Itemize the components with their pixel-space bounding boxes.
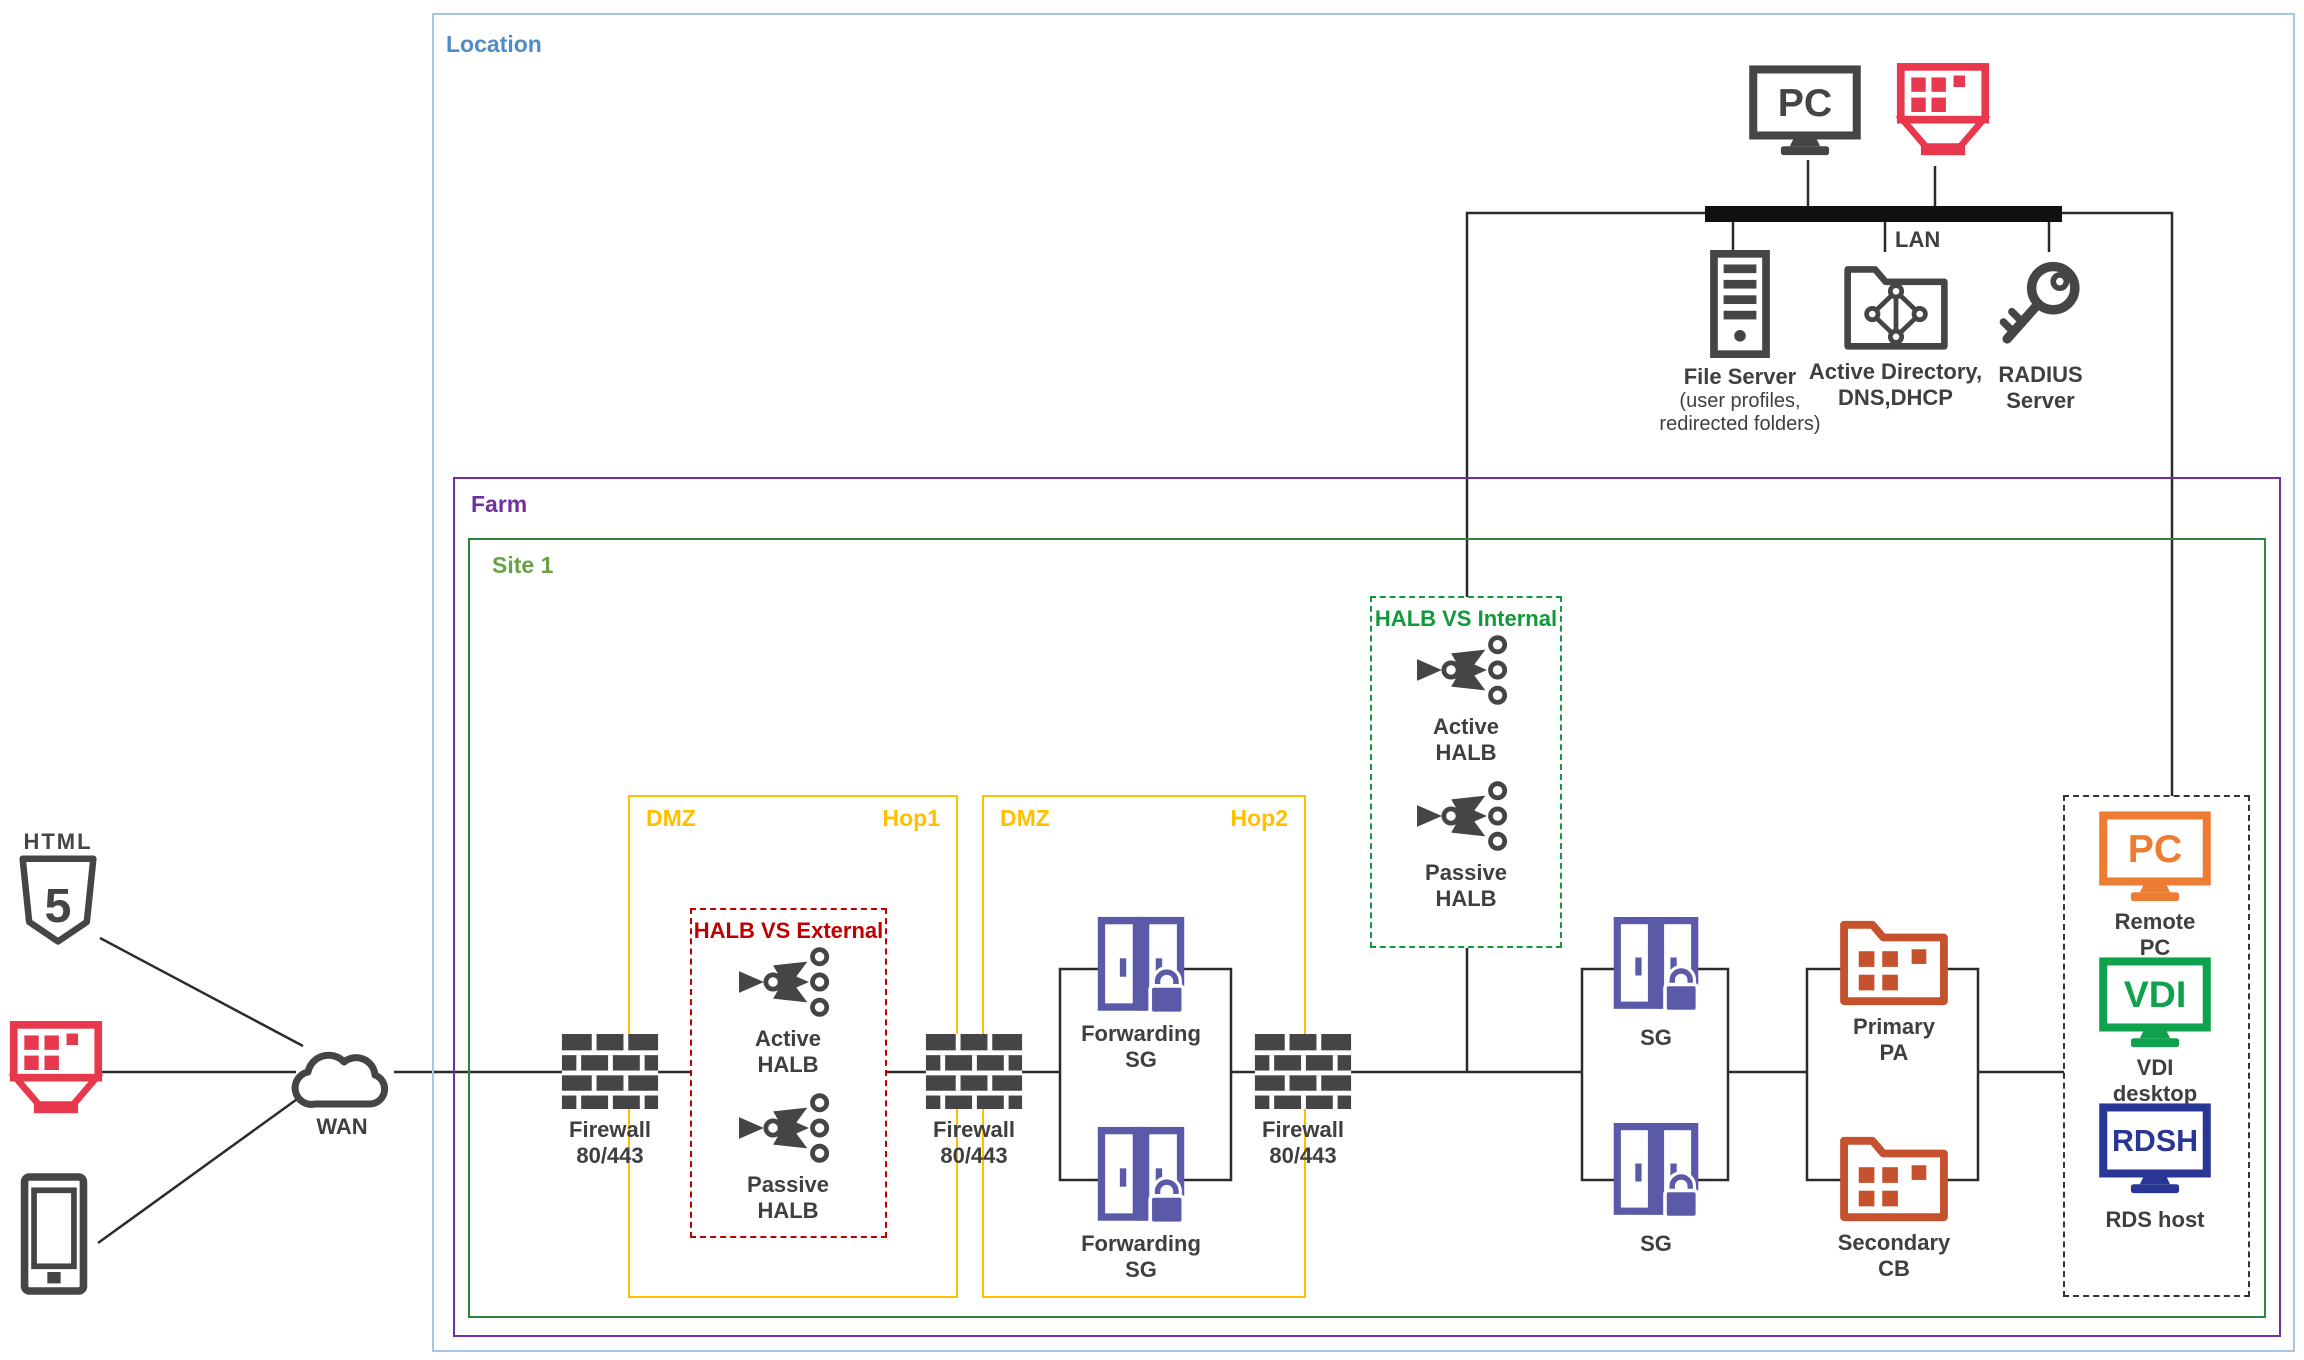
key-icon	[1994, 256, 2088, 356]
firewall-1: Firewall 80/443	[540, 1032, 680, 1169]
active-directory-label: Active Directory, DNS,DHCP	[1809, 359, 1982, 411]
load-balancer-icon	[1417, 778, 1515, 854]
connection-broker-icon	[1837, 1130, 1951, 1224]
html5-badge: HTML	[23, 829, 92, 855]
svg-text:PC: PC	[2128, 827, 2183, 871]
site-zone-label: Site 1	[470, 540, 553, 579]
firewall-label: Firewall 80/443	[569, 1117, 651, 1169]
office-pc: PC	[1740, 64, 1870, 157]
hop2-label: Hop2	[1231, 805, 1289, 832]
file-server-label: File Server	[1684, 364, 1797, 390]
html5-client: HTML 5	[12, 829, 104, 948]
passive-halb-label: Passive HALB	[1425, 860, 1507, 912]
rds-host: RDSH RDS host	[2085, 1102, 2225, 1233]
vdi-desktop-icon: VDI	[2097, 956, 2213, 1049]
rds-host-label: RDS host	[2106, 1207, 2205, 1233]
radius-server: RADIUS Server	[1958, 256, 2123, 414]
firewall-icon	[1253, 1032, 1353, 1111]
parallels-client-icon	[8, 1020, 104, 1120]
parallels-client-icon	[1895, 62, 1991, 162]
dmz2-label: DMZ	[1000, 805, 1050, 832]
cloud-icon	[287, 1030, 397, 1112]
secure-gateway-icon	[1611, 916, 1701, 1017]
svg-text:RDSH: RDSH	[2112, 1125, 2198, 1158]
firewall-icon	[560, 1032, 660, 1111]
svg-text:5: 5	[45, 879, 72, 933]
load-balancer-icon	[739, 944, 837, 1020]
forwarding-sg-label: Forwarding SG	[1081, 1231, 1201, 1283]
halb-external-title: HALB VS External	[694, 910, 884, 944]
location-zone-label: Location	[434, 15, 542, 58]
secondary-cb: Secondary CB	[1814, 1130, 1974, 1282]
smartphone-icon	[16, 1172, 92, 1296]
wan-label: WAN	[316, 1114, 367, 1140]
forwarding-sg-label: Forwarding SG	[1081, 1021, 1201, 1073]
passive-halb-label: Passive HALB	[747, 1172, 829, 1224]
vdi-desktop: VDI VDI desktop	[2085, 956, 2225, 1107]
load-balancer-icon	[739, 1090, 837, 1166]
remote-pc-label: Remote PC	[2115, 909, 2196, 961]
firewall-label: Firewall 80/443	[933, 1117, 1015, 1169]
halb-internal-group: Active HALB Passive HALB	[1386, 632, 1546, 912]
rds-host-icon: RDSH	[2097, 1102, 2213, 1195]
sg-bottom: SG	[1591, 1122, 1721, 1257]
remote-pc-icon: PC	[2097, 810, 2213, 903]
pc-monitor-icon: PC	[1747, 64, 1863, 157]
farm-zone-label: Farm	[455, 479, 527, 518]
dmz1-label: DMZ	[646, 805, 696, 832]
remote-pc: PC Remote PC	[2085, 810, 2225, 961]
hop1-label: Hop1	[883, 805, 941, 832]
firewall-label: Firewall 80/443	[1262, 1117, 1344, 1169]
office-parallels-client	[1893, 62, 1993, 162]
firewall-icon	[924, 1032, 1024, 1111]
wan-cloud: WAN	[286, 1030, 398, 1140]
forwarding-sg-bottom: Forwarding SG	[1071, 1126, 1211, 1283]
secondary-cb-label: Secondary CB	[1838, 1230, 1951, 1282]
active-halb-label: Active HALB	[755, 1026, 821, 1078]
forwarding-sg-top: Forwarding SG	[1071, 916, 1211, 1073]
halb-external-group: Active HALB Passive HALB	[708, 944, 868, 1224]
firewall-2: Firewall 80/443	[904, 1032, 1044, 1169]
load-balancer-icon	[1417, 632, 1515, 708]
primary-pa-label: Primary PA	[1853, 1014, 1935, 1066]
parallels-client-left	[8, 1020, 104, 1120]
primary-pa: Primary PA	[1814, 914, 1974, 1066]
edge-html5-wan	[100, 938, 303, 1046]
file-server-icon	[1709, 250, 1771, 358]
secure-gateway-icon	[1095, 1126, 1187, 1229]
firewall-3: Firewall 80/443	[1233, 1032, 1373, 1169]
html5-shield-icon: 5	[16, 855, 100, 948]
sg-top: SG	[1591, 916, 1721, 1051]
active-halb-label: Active HALB	[1433, 714, 1499, 766]
lan-label: LAN	[1895, 227, 1940, 253]
radius-server-label: RADIUS Server	[1998, 362, 2082, 414]
svg-text:PC: PC	[1778, 81, 1833, 125]
edge-phone-wan	[98, 1097, 300, 1243]
publishing-agent-icon	[1837, 914, 1951, 1008]
halb-internal-title: HALB VS Internal	[1375, 598, 1557, 632]
sg-label: SG	[1640, 1231, 1672, 1257]
mobile-client	[16, 1172, 92, 1296]
secure-gateway-icon	[1611, 1122, 1701, 1223]
active-directory-icon	[1841, 258, 1951, 353]
svg-text:VDI: VDI	[2124, 973, 2186, 1015]
sg-label: SG	[1640, 1025, 1672, 1051]
vdi-desktop-label: VDI desktop	[2113, 1055, 2197, 1107]
secure-gateway-icon	[1095, 916, 1187, 1019]
